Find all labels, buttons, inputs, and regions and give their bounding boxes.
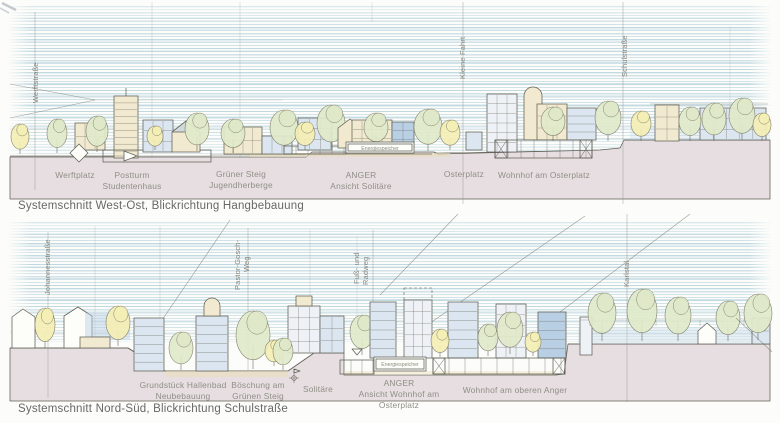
street-label-kleine-fahrt: Kleine Fahrt	[458, 37, 467, 79]
place-label-boeschung-am-gruenen-steig: Böschung am	[231, 380, 284, 390]
street-label-schulstrasse: Schulstraße	[620, 35, 629, 77]
place-label-solitaere: Solitäre	[303, 384, 333, 394]
street-label-pastor-gosch-weg: Weg	[242, 256, 251, 272]
place-label-gruener-steig-jugendherberge: Grüner Steig	[216, 169, 266, 179]
annotation-energiespeicher-top: Energiespeicher	[361, 146, 399, 152]
caption-nord-sued: Systemschnitt Nord-Süd, Blickrichtung Sc…	[18, 403, 288, 415]
place-label-anger-ansicht-solitaere: ANGER	[346, 170, 377, 180]
street-label-fuss-und-radweg: Fuß- und	[352, 252, 361, 284]
street-label-johannesstrasse: Johannesstraße	[43, 239, 52, 295]
street-label-pastor-gosch-weg: Pastor-Gosch-	[233, 239, 242, 290]
place-label-anger-ansicht-wohnhof-am-osterplatz: ANGER	[384, 378, 415, 388]
place-label-wohnhof-am-oberen-anger: Wohnhof am oberen Anger	[463, 385, 568, 395]
place-label-boeschung-am-gruenen-steig: Grünen Steig	[232, 391, 284, 401]
place-label-postturm-studentenhaus: Postturm	[114, 170, 149, 180]
street-label-fuss-und-radweg: Radweg	[361, 257, 370, 285]
place-label-osterplatz: Osterplatz	[444, 169, 484, 179]
street-label-werftstrasse: Werftstraße	[31, 62, 40, 103]
street-label-karlstal: Karlstal	[622, 261, 631, 287]
place-label-wohnhof-am-osterplatz: Wohnhof am Osterplatz	[498, 170, 590, 180]
place-label-anger-ansicht-wohnhof-am-osterplatz: Osterplatz	[379, 400, 419, 410]
place-label-postturm-studentenhaus: Studentenhaus	[103, 181, 162, 191]
place-label-anger-ansicht-wohnhof-am-osterplatz: Ansicht Wohnhof am	[359, 389, 440, 399]
place-label-gruener-steig-jugendherberge: Jugendherberge	[209, 180, 273, 190]
annotation-energiespeicher-bottom: Energiespeicher	[381, 362, 419, 368]
place-label-grundstueck-hallenbad-neubebauung: Neubebauung	[156, 391, 211, 401]
caption-west-ost: Systemschnitt West-Ost, Blickrichtung Ha…	[18, 200, 304, 212]
place-label-werftplatz: Werftplatz	[55, 170, 95, 180]
place-label-grundstueck-hallenbad-neubebauung: Grundstück Hallenbad	[140, 380, 227, 390]
scanned-sheet: WerftstraßeKleine FahrtSchulstraßeWerftp…	[0, 0, 780, 423]
place-label-anger-ansicht-solitaere: Ansicht Solitäre	[330, 181, 392, 191]
